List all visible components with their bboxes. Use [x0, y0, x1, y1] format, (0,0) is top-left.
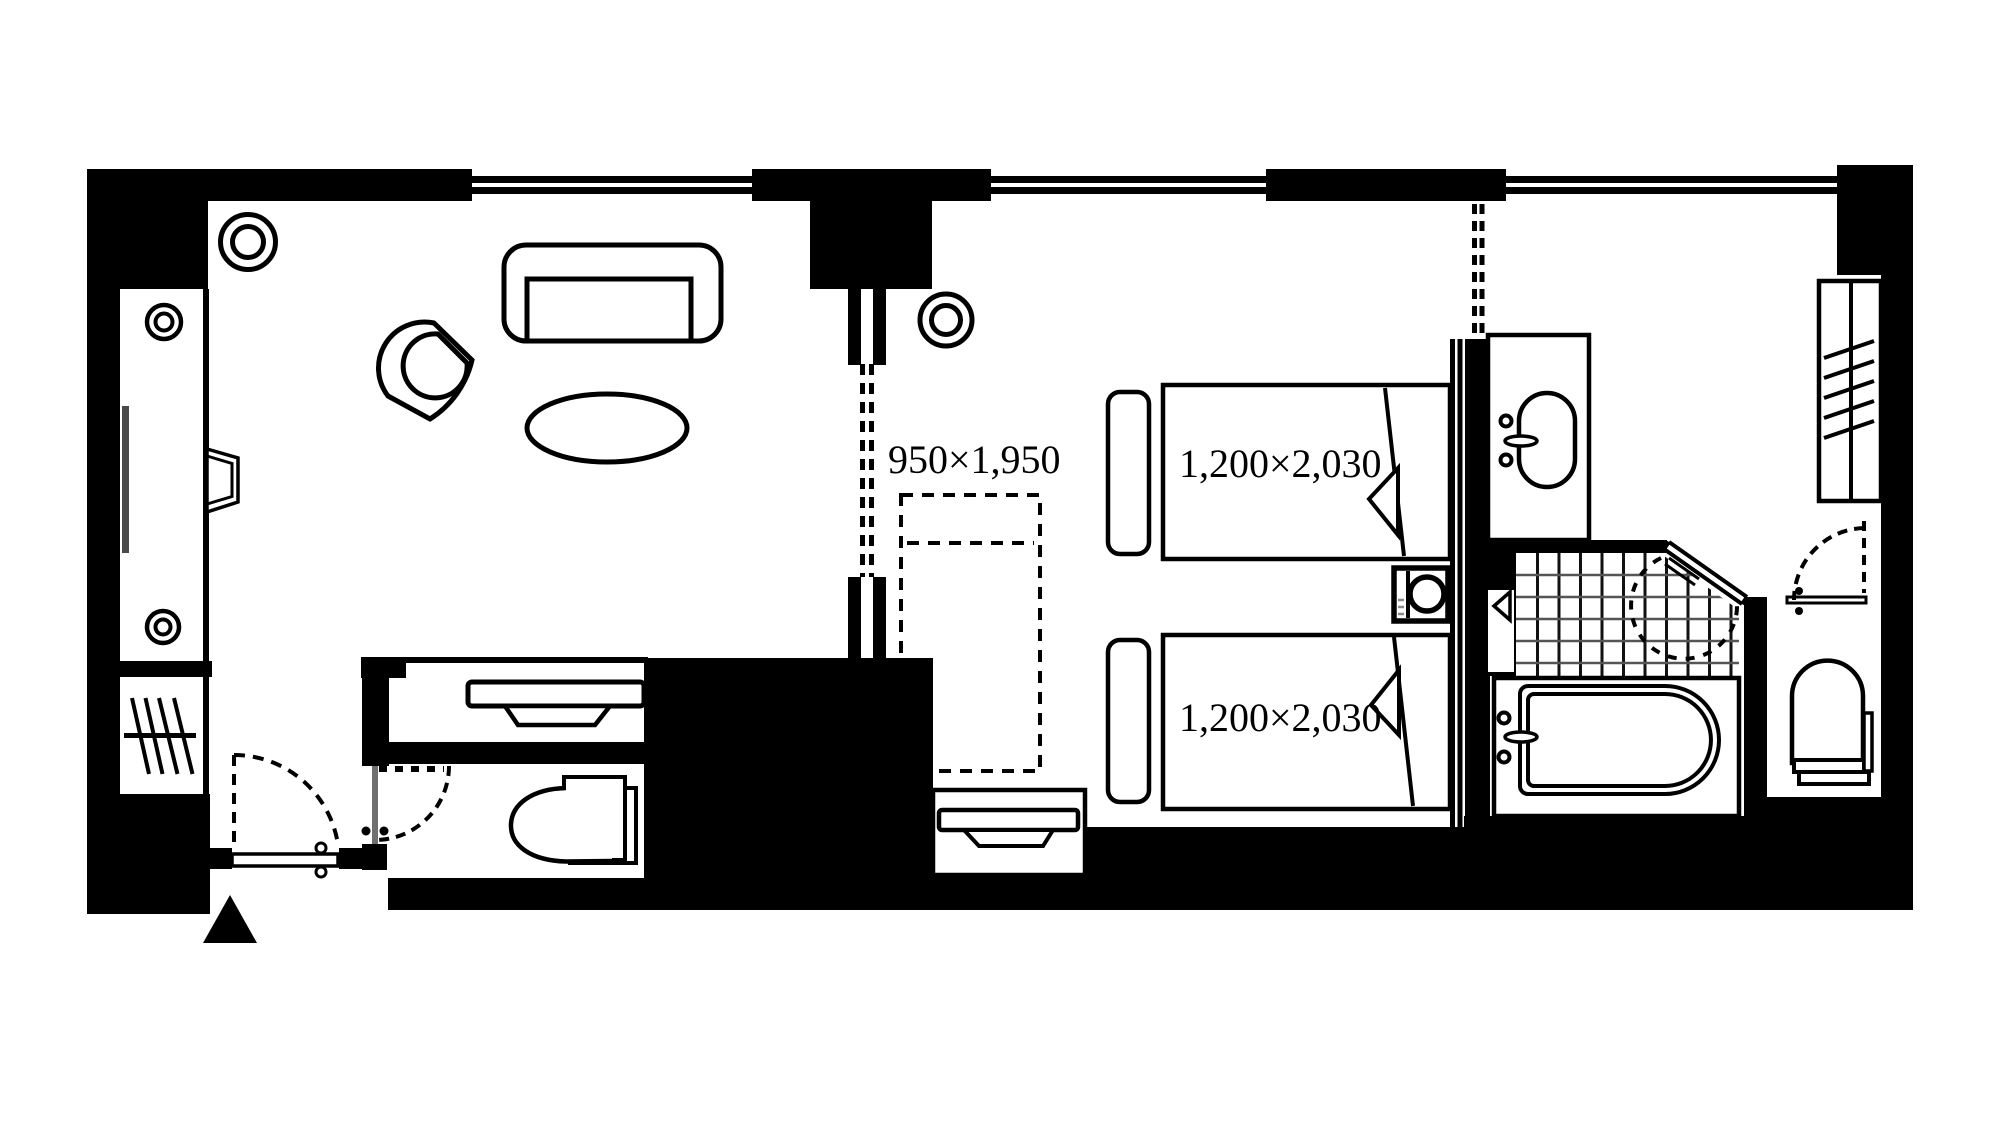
svg-text:1,200×2,030: 1,200×2,030: [1179, 441, 1382, 486]
svg-text:1,200×2,030: 1,200×2,030: [1179, 695, 1382, 740]
svg-text:950×1,950: 950×1,950: [888, 437, 1061, 482]
